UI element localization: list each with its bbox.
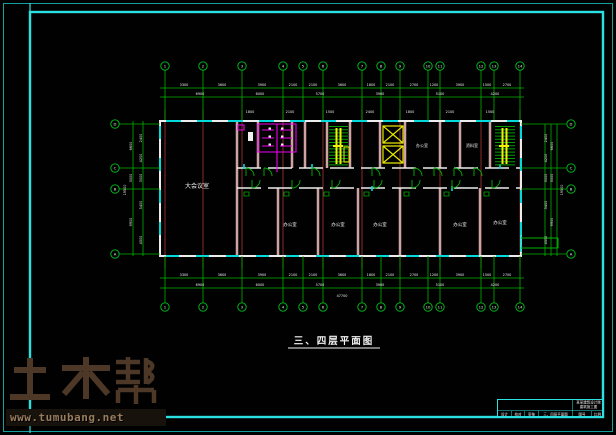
title-block-company: 某某建筑设计院 [573, 401, 603, 405]
title-block-blank-cell [498, 400, 573, 411]
watermark: 土木帮 www.tumubang.net [6, 354, 181, 426]
dims-bottom-row2: 690060005700390051004200 [196, 283, 500, 287]
dimension-text: 1500 [326, 110, 335, 114]
dimension-text: 3900 [258, 273, 267, 277]
dimension-text: 3600 [218, 83, 227, 87]
dims-totals: 47700 19500 19500 [123, 185, 564, 298]
dimension-text: 3900 [456, 83, 465, 87]
dimension-text: 9900 [550, 218, 554, 227]
dimension-text: 3900 [258, 83, 267, 87]
dimension-text: 2100 [286, 110, 295, 114]
room-label: 办公室 [373, 221, 387, 228]
dimension-text: 2100 [309, 273, 318, 277]
dims-left-outer: 660030009900 [129, 142, 133, 227]
dimension-text: 3600 [338, 273, 347, 277]
dimension-text: 1500 [483, 273, 492, 277]
dimension-text: 3000 [550, 174, 554, 183]
title-block-project: 建筑施工图 [573, 406, 603, 410]
dimension-text: 2700 [503, 83, 512, 87]
axis-bubble-label: 12 [479, 63, 484, 68]
title-block: 某某建筑设计院 建筑施工图 设计 校对 审核 三、四层平面图 图号 比例 [497, 399, 603, 417]
dimension-text: 2400 [366, 110, 375, 114]
axis-bubble-label: 13 [492, 63, 497, 68]
dimension-text: 5400 [544, 201, 548, 210]
room-label: 办公室 [493, 219, 507, 226]
room-label-hall: 大会议室 [185, 182, 209, 190]
axis-bubbles-bottom: 1234567891011121314 [161, 303, 524, 311]
dimension-text: 4200 [544, 154, 548, 163]
axis-bubble-label: A [114, 251, 117, 256]
dimension-text: 2100 [386, 273, 395, 277]
axis-bubble-label: 10 [426, 304, 431, 309]
drawing-caption: 三、四层平面图 [294, 336, 375, 347]
dimension-text: 6900 [196, 283, 205, 287]
axis-bubble-label: 11 [438, 304, 443, 309]
dimension-text: 3000 [139, 174, 143, 183]
dimension-text: 3900 [376, 92, 385, 96]
axis-bubble-label: D [570, 121, 573, 126]
dimension-text: 19500 [560, 185, 564, 196]
dimension-text: 2400 [544, 134, 548, 143]
dimension-text: 2400 [139, 134, 143, 143]
toilet-partitions [238, 124, 296, 172]
dimension-text: 3000 [129, 174, 133, 183]
dimension-text: 1500 [483, 83, 492, 87]
axis-bubble-label: B [114, 186, 117, 191]
dimension-text: 1800 [367, 83, 376, 87]
dimension-text: 2100 [446, 110, 455, 114]
watermark-char-tu [10, 358, 50, 397]
corridor-walls [237, 168, 521, 188]
axis-bubble-label: D [114, 121, 117, 126]
dimension-text: 1200 [430, 273, 439, 277]
axis-bubble-label: 14 [518, 304, 523, 309]
dimension-text: 3600 [218, 273, 227, 277]
axis-bubbles-top: 1234567891011121314 [161, 62, 524, 70]
dimension-text: 4500 [139, 236, 143, 245]
axis-bubble-label: 13 [492, 304, 497, 309]
dimension-text: 3300 [180, 273, 189, 277]
room-label: 办公室 [416, 142, 428, 148]
title-block-cell-number: 图号 [573, 411, 592, 417]
dimension-text: 4200 [491, 283, 500, 287]
dimension-text: 2100 [289, 273, 298, 277]
watermark-char-mu [62, 357, 110, 399]
watermark-char-bang [116, 357, 154, 404]
dimension-text: 5100 [436, 283, 445, 287]
dimension-text: 5400 [139, 201, 143, 210]
dims-top-row2: 690060005700390051004200 [196, 92, 500, 96]
dimension-text: 1800 [367, 273, 376, 277]
dimension-text: 9900 [129, 218, 133, 227]
dimension-text: 1200 [430, 83, 439, 87]
dimension-text: 4200 [139, 154, 143, 163]
dimension-text: 3600 [338, 83, 347, 87]
axis-bubbles-right: DCBA [567, 120, 575, 258]
title-block-cell-check: 校对 [512, 411, 526, 417]
dimension-text: 2100 [289, 83, 298, 87]
watermark-logo [6, 354, 166, 408]
dimension-text: 6600 [129, 142, 133, 151]
axis-bubble-label: 10 [426, 63, 431, 68]
dimension-text: 6600 [550, 142, 554, 151]
dimension-text: 3900 [376, 283, 385, 287]
axis-bubble-label: B [570, 186, 573, 191]
dimension-text: 19500 [123, 185, 127, 196]
axis-bubble-label: A [570, 251, 573, 256]
dimension-text: 6000 [256, 283, 265, 287]
dimension-text: 3900 [456, 273, 465, 277]
dimension-text: 4500 [544, 236, 548, 245]
dimension-text: 6000 [256, 92, 265, 96]
east-annex-lines [521, 238, 558, 248]
axis-bubble-label: 12 [479, 304, 484, 309]
dimension-text: 5100 [436, 92, 445, 96]
axis-bubble-label: C [570, 165, 573, 170]
dims-top-row1: 3300360039002100210036001800210027001200… [180, 83, 512, 87]
room-label: 办公室 [283, 221, 297, 228]
room-label: 资料室 [466, 142, 478, 148]
room-label: 办公室 [331, 221, 345, 228]
title-block-cell-drawing-name: 三、四层平面图 [539, 411, 574, 417]
room-door-marks [244, 192, 489, 196]
dimension-text: 5700 [316, 92, 325, 96]
dimension-text: 5700 [316, 283, 325, 287]
axis-bubble-label: 14 [518, 63, 523, 68]
dimension-text: 47700 [337, 294, 348, 298]
dimension-text: 2700 [410, 83, 419, 87]
title-block-cell-scale: 比例 [592, 411, 604, 417]
dimension-text: 2700 [410, 273, 419, 277]
axis-bubble-label: 11 [438, 63, 443, 68]
axis-bubbles-left: DCBA [111, 120, 119, 258]
dimension-text: 1800 [406, 110, 415, 114]
title-block-cell-design: 设计 [498, 411, 512, 417]
watermark-url: www.tumubang.net [6, 409, 166, 426]
dimension-text: 1500 [486, 110, 495, 114]
dimension-text: 3000 [544, 174, 548, 183]
column-axis-lines [165, 110, 520, 268]
dimension-text: 2100 [386, 83, 395, 87]
dimension-text: 6900 [196, 92, 205, 96]
dimension-text: 2700 [503, 273, 512, 277]
dimension-text: 3300 [180, 83, 189, 87]
dimension-text: 1800 [246, 110, 255, 114]
title-block-cell-approve: 审核 [525, 411, 539, 417]
room-label: 办公室 [453, 221, 467, 228]
axis-bubble-label: C [114, 165, 117, 170]
dims-bottom-row1: 3300360039002100210036001800210027001200… [180, 273, 512, 277]
cad-drawing-sheet: 3300360039002100210036001800210027001200… [0, 0, 616, 435]
door-swings [246, 168, 500, 188]
dimension-text: 2100 [309, 83, 318, 87]
dimension-text: 4200 [491, 92, 500, 96]
